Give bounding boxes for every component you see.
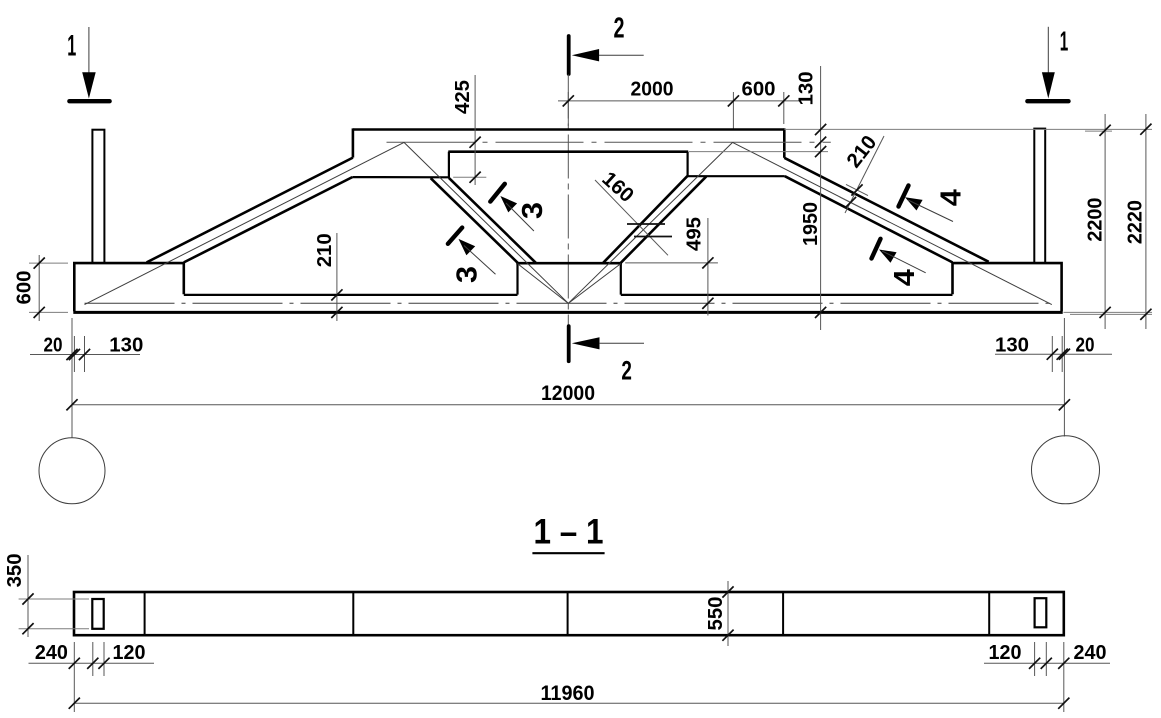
svg-text:1: 1 [67,30,76,63]
svg-text:210: 210 [313,233,336,267]
svg-text:130: 130 [995,334,1029,357]
svg-text:120: 120 [113,641,146,664]
svg-text:2200: 2200 [1083,198,1106,242]
svg-text:350: 350 [3,553,26,587]
svg-text:2000: 2000 [631,78,674,101]
svg-text:550: 550 [704,597,727,631]
svg-text:20: 20 [44,334,63,357]
svg-text:425: 425 [451,80,474,114]
svg-text:3: 3 [517,202,549,219]
svg-text:240: 240 [1074,641,1107,664]
svg-text:120: 120 [989,641,1022,664]
svg-text:1 – 1: 1 – 1 [534,513,604,552]
svg-text:2: 2 [621,356,632,386]
svg-text:600: 600 [12,271,35,305]
svg-text:1: 1 [1060,25,1069,56]
svg-text:130: 130 [109,334,143,357]
svg-text:130: 130 [794,71,817,105]
svg-text:4: 4 [935,189,967,206]
svg-text:2220: 2220 [1124,200,1147,244]
svg-text:20: 20 [1076,334,1095,357]
svg-text:3: 3 [451,266,483,283]
svg-text:240: 240 [35,641,68,664]
svg-text:495: 495 [682,217,705,251]
svg-text:12000: 12000 [541,382,595,405]
svg-text:11960: 11960 [541,682,595,705]
svg-text:600: 600 [742,78,776,101]
svg-text:2: 2 [614,12,625,44]
svg-text:4: 4 [889,269,921,286]
svg-text:1950: 1950 [799,202,822,246]
